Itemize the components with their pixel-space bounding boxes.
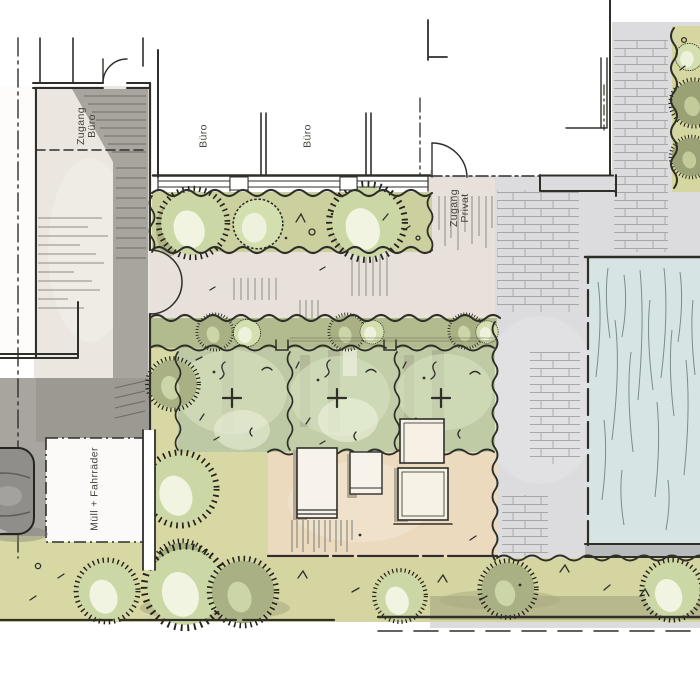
- lounger: [297, 448, 337, 518]
- site-plan-drawing: [0, 0, 700, 700]
- table-large: [398, 468, 448, 520]
- shrub-symbol: [675, 43, 700, 70]
- site-plan: Büro Büro Zugang Büro Zugang Privat Müll…: [0, 0, 700, 700]
- pool: [585, 258, 700, 557]
- label-zugang-privat: Zugang Privat: [449, 189, 471, 227]
- label-zugang-buero: Zugang Büro: [76, 107, 98, 145]
- shrub-symbol: [233, 199, 283, 249]
- shrub-symbol: [360, 320, 384, 344]
- label-muell-fahrraeder: Müll + Fahrräder: [90, 447, 101, 531]
- shrub-symbol: [476, 321, 498, 343]
- shrub-symbol: [233, 319, 260, 346]
- bench: [400, 419, 444, 463]
- room-label-buero-1: Büro: [199, 124, 210, 148]
- room-label-buero-2: Büro: [303, 124, 314, 148]
